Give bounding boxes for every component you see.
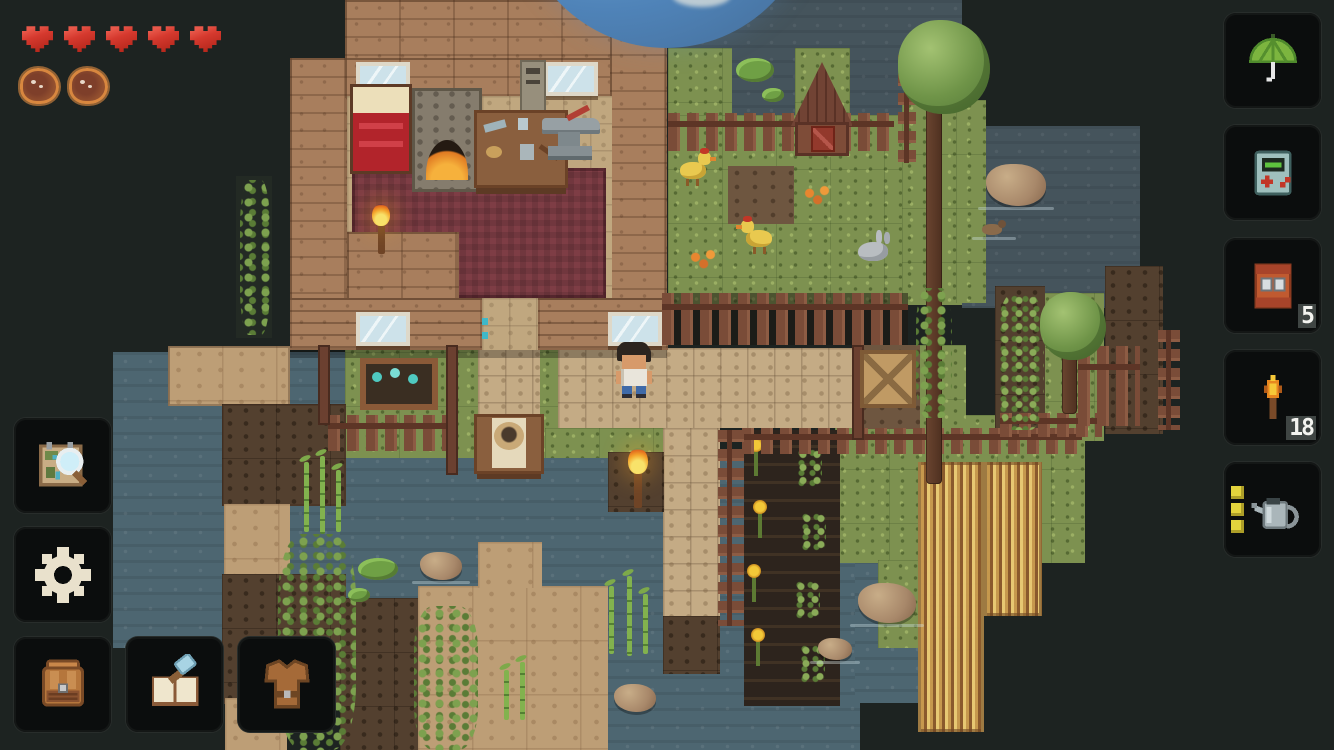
lily-pad [762, 88, 784, 102]
chicken-leg [753, 247, 756, 254]
fence[interactable] [668, 113, 894, 151]
crop-sapling[interactable] [800, 512, 826, 552]
table-cup [518, 118, 528, 130]
duck-head [998, 220, 1006, 228]
rabbit-ear [884, 232, 890, 244]
heart-icon [64, 24, 95, 52]
sand-tile [478, 542, 542, 588]
watering-can-slot-button[interactable] [1224, 462, 1321, 557]
chicken-comb [743, 216, 752, 222]
green-umbrella-icon [1243, 31, 1303, 91]
lily-pad [736, 58, 774, 82]
torch-count: 18 [1286, 416, 1316, 440]
torch[interactable] [378, 222, 385, 254]
crate[interactable] [860, 350, 916, 408]
map-magnifier-icon [33, 436, 93, 496]
door-opening[interactable] [482, 298, 538, 350]
fence-post [318, 345, 330, 425]
chicken[interactable] [678, 148, 716, 190]
crop-sapling[interactable] [794, 580, 820, 620]
meat-icon [20, 68, 59, 104]
teal-flower [390, 368, 400, 378]
vine-on-trunk [916, 288, 952, 418]
charge-bar [1231, 503, 1244, 516]
chimney-vent [526, 80, 540, 84]
teal-flower [372, 372, 382, 382]
fence[interactable] [328, 415, 454, 451]
orange-cabinet-icon [1243, 256, 1303, 316]
crop-sapling[interactable] [796, 448, 822, 488]
player-leg [622, 386, 632, 398]
chicken-leg [763, 247, 766, 254]
bamboo-cluster[interactable] [603, 576, 657, 660]
chicken[interactable] [736, 216, 774, 258]
ladder[interactable] [1158, 330, 1180, 430]
wheat-field[interactable] [918, 462, 984, 732]
torch-flame [372, 204, 390, 226]
sunflower-head [751, 628, 765, 642]
furnace-fire [426, 140, 468, 180]
player-shirt [621, 369, 647, 386]
gear-icon [32, 544, 94, 606]
window [608, 312, 662, 346]
inventory-button[interactable] [14, 637, 111, 732]
gadget-slot-button[interactable] [1224, 125, 1321, 220]
window [356, 312, 410, 346]
house-shadow [290, 350, 667, 358]
bed[interactable] [350, 84, 412, 174]
crafting-book-hammer-icon [144, 654, 206, 716]
stone-path [558, 348, 882, 428]
health-bar [22, 24, 221, 52]
equipment-button[interactable] [238, 637, 335, 732]
orange-flowers [800, 184, 834, 206]
barn-roof [791, 62, 853, 126]
stone-path [478, 348, 540, 423]
watering-can-charge-bars [1231, 486, 1244, 533]
sand-cliff [168, 346, 290, 406]
torch[interactable] [634, 470, 642, 508]
clay-pot[interactable] [494, 422, 524, 450]
charge-bar [1231, 486, 1244, 499]
handheld-console-icon [1243, 143, 1303, 203]
duck[interactable] [980, 220, 1008, 236]
settings-button[interactable] [14, 527, 111, 622]
barn-door[interactable] [811, 126, 835, 152]
interior-wall [347, 232, 459, 300]
leather-armor-icon [256, 654, 318, 716]
table-bowl [486, 146, 502, 158]
tree-canopy[interactable] [1040, 292, 1106, 360]
bed-pillow [353, 87, 409, 113]
window [544, 62, 598, 96]
glider-slot-button[interactable] [1224, 13, 1321, 108]
dirt-tile [663, 616, 720, 674]
map-button[interactable] [14, 418, 111, 513]
player-face [622, 355, 646, 369]
rabbit-ear [876, 230, 882, 244]
tilled-soil[interactable] [744, 430, 840, 706]
heart-icon [190, 24, 221, 52]
fence-post [446, 345, 458, 475]
vine [240, 180, 270, 335]
pot-table[interactable] [474, 414, 544, 474]
bush[interactable] [998, 294, 1044, 430]
player-character[interactable] [612, 342, 656, 402]
rabbit-body [858, 242, 888, 261]
teal-flower [408, 374, 418, 384]
watering-can-icon [1243, 480, 1303, 540]
bed-blanket-stripe [359, 141, 403, 147]
hunger-bar [20, 68, 108, 104]
fence[interactable] [718, 430, 744, 626]
tree-canopy[interactable] [898, 20, 990, 114]
sunflower-head [747, 564, 761, 578]
table-mug [520, 144, 534, 160]
anvil[interactable] [540, 112, 604, 166]
chicken-comb [700, 148, 709, 154]
lily-pad [348, 588, 370, 602]
heart-icon [148, 24, 179, 52]
bed-blanket-stripe [359, 123, 403, 129]
barn[interactable] [791, 62, 853, 160]
door-hinge [482, 318, 488, 325]
chimney-vent [526, 68, 540, 74]
chicken-beak [710, 157, 716, 161]
fence[interactable] [662, 293, 908, 345]
crafting-button[interactable] [126, 637, 223, 732]
game-screen: 5 18 [0, 0, 1334, 750]
cabinet-slot-button[interactable]: 5 [1224, 238, 1321, 333]
fence[interactable] [1078, 346, 1140, 426]
meat-icon [69, 68, 108, 104]
torch-flame [628, 448, 648, 474]
bamboo-cluster[interactable] [498, 662, 534, 724]
chicken-beak [736, 225, 742, 229]
player-leg [636, 386, 646, 398]
heart-icon [22, 24, 53, 52]
table-saw-tool [483, 119, 506, 132]
torch-slot-button[interactable]: 18 [1224, 350, 1321, 445]
sunflower-head [753, 500, 767, 514]
cabinet-count: 5 [1298, 304, 1316, 328]
rock[interactable] [420, 552, 462, 580]
heart-icon [106, 24, 137, 52]
chicken-leg [696, 179, 699, 186]
charge-bar [1231, 520, 1244, 533]
anvil-neck [558, 132, 580, 146]
furnace[interactable] [412, 88, 482, 192]
rabbit[interactable] [854, 228, 896, 264]
rock[interactable] [818, 638, 852, 660]
chicken-leg [686, 179, 689, 186]
vine [414, 606, 478, 750]
flower-planter[interactable] [360, 358, 438, 410]
anvil-base [548, 146, 592, 160]
orange-flowers [686, 248, 720, 270]
lily-pad [358, 558, 398, 580]
wheat-field[interactable] [984, 462, 1042, 616]
rock[interactable] [614, 684, 656, 712]
stone-path [663, 428, 720, 618]
backpack-icon [32, 654, 94, 716]
sand-tile [224, 504, 290, 576]
bamboo-cluster[interactable] [298, 456, 350, 538]
door-hinge [482, 332, 488, 339]
